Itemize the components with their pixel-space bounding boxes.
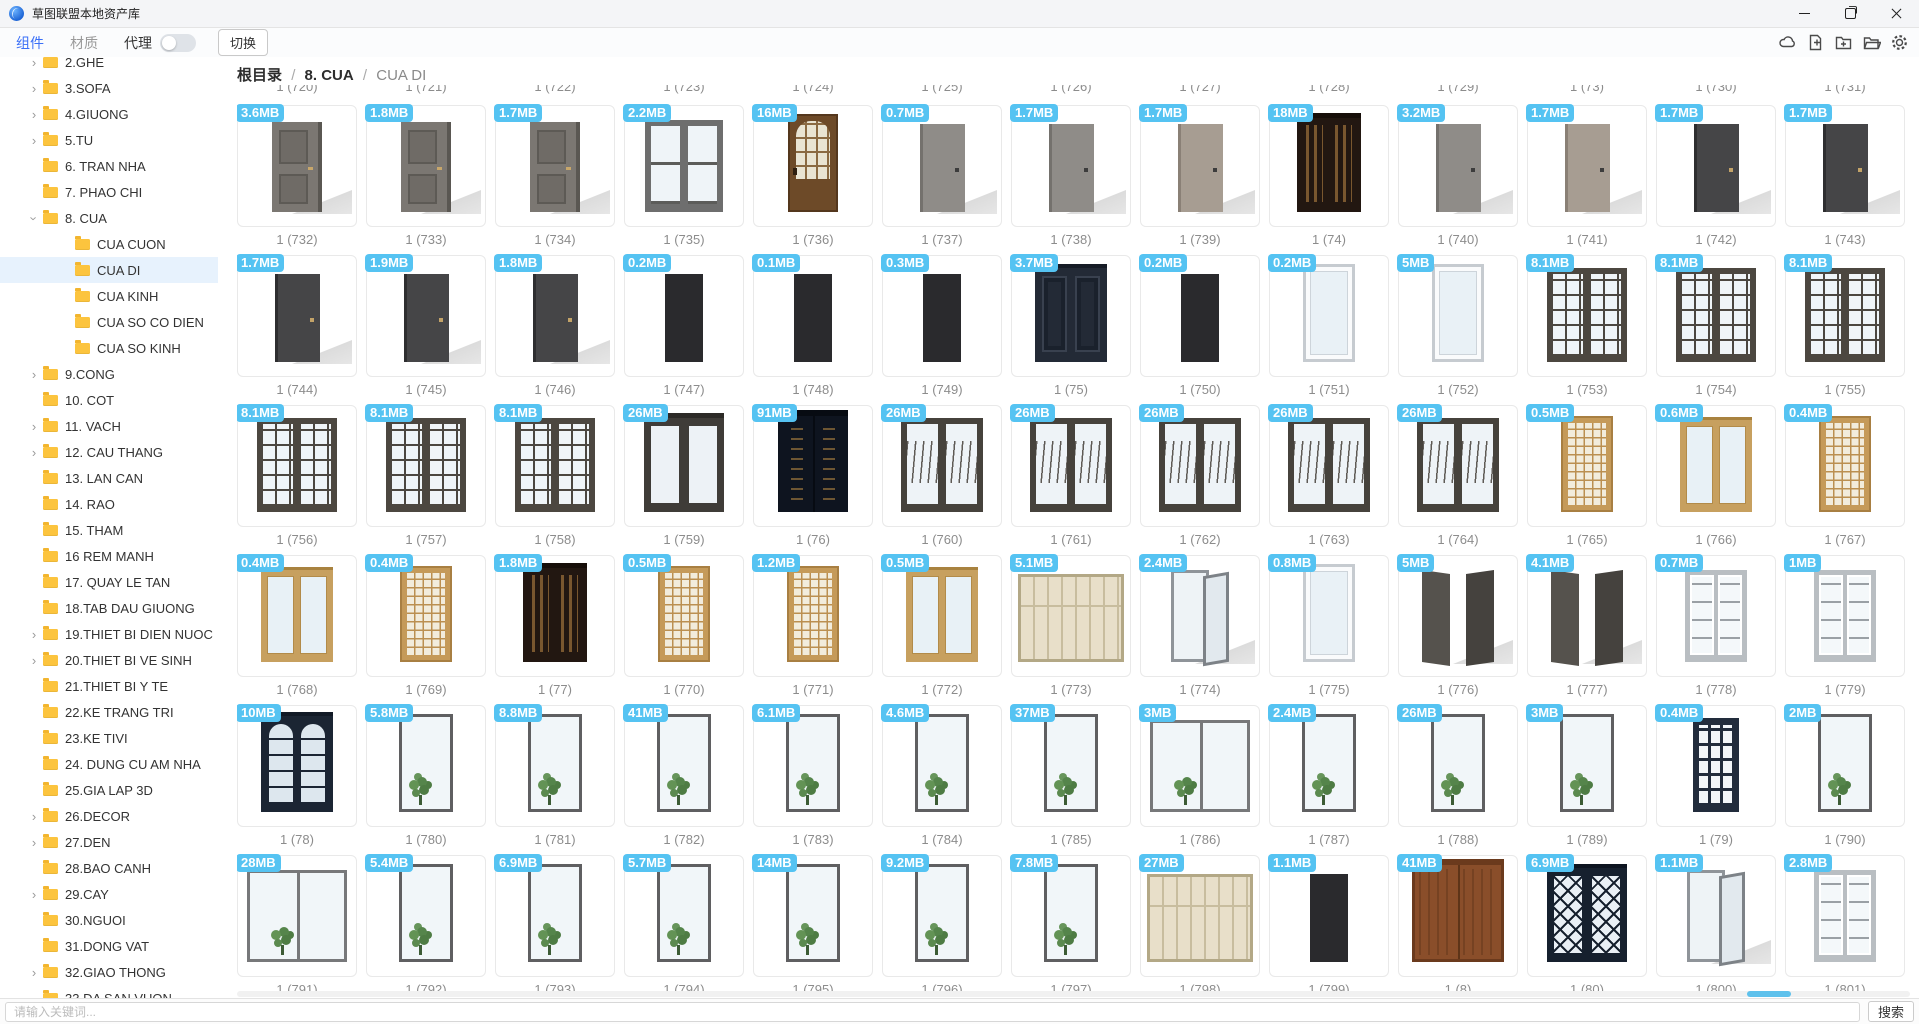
asset-thumbnail <box>882 705 1002 827</box>
file-size-badge: 5.4MB <box>365 854 413 872</box>
asset-card[interactable]: 3MB1 (789) <box>1527 705 1647 847</box>
asset-card[interactable]: 0.2MB1 (750) <box>1140 255 1260 397</box>
door-preview <box>787 566 839 662</box>
horizontal-scrollbar[interactable] <box>237 991 1910 997</box>
sidebar-item[interactable]: ›8. CUA <box>0 205 218 231</box>
asset-card[interactable]: 0.4MB1 (769) <box>366 555 486 697</box>
sidebar-item[interactable]: 21.THIET BI Y TE <box>0 673 218 699</box>
asset-thumbnail <box>1527 555 1647 677</box>
tab-materials[interactable]: 材质 <box>70 33 98 53</box>
asset-thumbnail <box>1269 555 1389 677</box>
sidebar-item[interactable]: 14. RAO <box>0 491 218 517</box>
cloud-icon[interactable] <box>1778 33 1797 52</box>
sidebar-item[interactable]: 15. THAM <box>0 517 218 543</box>
file-size-badge: 0.3MB <box>881 254 929 272</box>
sidebar-item[interactable]: ›12. CAU THANG <box>0 439 218 465</box>
horizontal-scrollbar-thumb[interactable] <box>1747 991 1791 997</box>
folder-icon <box>43 811 58 822</box>
door-preview <box>261 712 333 812</box>
search-input[interactable] <box>5 1002 1860 1022</box>
file-size-badge: 0.5MB <box>623 554 671 572</box>
asset-card[interactable]: 26MB1 (763) <box>1269 405 1389 547</box>
asset-thumbnail <box>1269 255 1389 377</box>
chevron-right-icon[interactable]: › <box>26 446 42 459</box>
file-size-badge: 1.8MB <box>494 554 542 572</box>
sidebar-item-label: CUA SO KINH <box>97 341 181 356</box>
folder-icon <box>43 447 58 458</box>
asset-name: 1 (745) <box>366 382 486 397</box>
sidebar-item-label: 15. THAM <box>65 523 123 538</box>
asset-card[interactable]: 0.2MB1 (747) <box>624 255 744 397</box>
asset-card[interactable]: 3.7MB1 (75) <box>1011 255 1131 397</box>
asset-card[interactable]: 2.2MB1 (735) <box>624 105 744 247</box>
file-size-badge: 5MB <box>1397 554 1434 572</box>
sidebar-item[interactable]: ›9.CONG <box>0 361 218 387</box>
asset-thumbnail <box>1785 105 1905 227</box>
asset-thumbnail <box>1269 705 1389 827</box>
sidebar-item[interactable]: 28.BAO CANH <box>0 855 218 881</box>
asset-name: 1 (777) <box>1527 682 1647 697</box>
door-preview <box>247 870 347 962</box>
asset-card[interactable]: 18MB1 (74) <box>1269 105 1389 247</box>
asset-card[interactable]: 26MB1 (762) <box>1140 405 1260 547</box>
sidebar-item[interactable]: 13. LAN CAN <box>0 465 218 491</box>
folder-icon <box>43 551 58 562</box>
asset-card[interactable]: 37MB1 (785) <box>1011 705 1131 847</box>
door-preview <box>1687 870 1745 962</box>
breadcrumb-separator: / <box>291 67 295 84</box>
door-preview <box>786 714 840 812</box>
sidebar-item[interactable]: 31.DONG VAT <box>0 933 218 959</box>
chevron-right-icon[interactable]: › <box>26 368 42 381</box>
sidebar-item[interactable]: ›20.THIET BI VE SINH <box>0 647 218 673</box>
sidebar-item[interactable]: ›29.CAY <box>0 881 218 907</box>
switch-button[interactable]: 切换 <box>218 29 268 56</box>
sidebar-item[interactable]: ›32.GIAO THONG <box>0 959 218 985</box>
asset-card[interactable]: 26MB1 (788) <box>1398 705 1518 847</box>
close-button[interactable] <box>1873 0 1919 27</box>
chevron-right-icon[interactable]: › <box>26 420 42 433</box>
door-preview <box>915 864 969 962</box>
asset-thumbnail <box>753 105 873 227</box>
sidebar-item[interactable]: 25.GIA LAP 3D <box>0 777 218 803</box>
door-preview <box>401 122 451 212</box>
door-preview <box>1547 268 1627 362</box>
sidebar-item[interactable]: 17. QUAY LE TAN <box>0 569 218 595</box>
asset-name: 1 (749) <box>882 382 1002 397</box>
door-preview <box>1561 416 1613 512</box>
door-preview <box>1818 714 1872 812</box>
asset-card[interactable]: 0.4MB1 (79) <box>1656 705 1776 847</box>
asset-card[interactable]: 1.7MB1 (741) <box>1527 105 1647 247</box>
sidebar-item[interactable]: ›11. VACH <box>0 413 218 439</box>
door-preview <box>528 864 582 962</box>
asset-name: 1 (760) <box>882 532 1002 547</box>
asset-card[interactable]: 3MB1 (786) <box>1140 705 1260 847</box>
asset-name: 1 (754) <box>1656 382 1776 397</box>
asset-card[interactable]: 7.8MB1 (797) <box>1011 855 1131 996</box>
chevron-right-icon[interactable]: › <box>26 82 42 95</box>
door-preview <box>915 714 969 812</box>
asset-thumbnail <box>237 855 357 977</box>
breadcrumb-root[interactable]: 根目录 <box>237 67 282 84</box>
asset-name: 1 (781) <box>495 832 615 847</box>
asset-card[interactable]: 41MB1 (782) <box>624 705 744 847</box>
settings-gear-icon[interactable] <box>1890 33 1909 52</box>
asset-card[interactable]: 3.2MB1 (740) <box>1398 105 1518 247</box>
door-preview <box>920 124 965 212</box>
asset-thumbnail <box>366 555 486 677</box>
asset-card[interactable]: 26MB1 (764) <box>1398 405 1518 547</box>
sidebar-item-label: 11. VACH <box>65 419 121 434</box>
asset-thumbnail <box>366 405 486 527</box>
door-preview <box>1018 574 1124 662</box>
asset-card[interactable]: 6.1MB1 (783) <box>753 705 873 847</box>
file-size-badge: 0.7MB <box>881 104 929 122</box>
door-preview <box>1178 124 1223 212</box>
sidebar-item-label: 33.DA SAN VUON <box>65 991 172 999</box>
asset-card[interactable]: 5.4MB1 (792) <box>366 855 486 996</box>
asset-card[interactable]: 1.7MB1 (742) <box>1656 105 1776 247</box>
asset-card[interactable]: 27MB1 (798) <box>1140 855 1260 996</box>
chevron-right-icon[interactable]: › <box>26 57 42 69</box>
asset-name: 1 (774) <box>1140 682 1260 697</box>
sidebar-item[interactable]: CUA SO KINH <box>0 335 218 361</box>
search-button[interactable]: 搜索 <box>1868 1001 1914 1022</box>
asset-name: 1 (790) <box>1785 832 1905 847</box>
asset-card[interactable]: 5.8MB1 (780) <box>366 705 486 847</box>
door-preview <box>1044 714 1098 812</box>
asset-name: 1 (778) <box>1656 682 1776 697</box>
sidebar-item[interactable]: CUA DI <box>0 257 218 283</box>
asset-card[interactable]: 1.7MB1 (734) <box>495 105 615 247</box>
file-size-badge: 5.1MB <box>1010 554 1058 572</box>
file-size-badge: 26MB <box>623 404 668 422</box>
asset-grid-viewport: 1 (720)1 (721)1 (722)1 (723)1 (724)1 (72… <box>237 85 1910 996</box>
minimize-button[interactable] <box>1781 0 1827 27</box>
asset-thumbnail <box>1785 555 1905 677</box>
asset-thumbnail <box>366 105 486 227</box>
asset-card[interactable]: 8.1MB1 (755) <box>1785 255 1905 397</box>
asset-card[interactable]: 1.8MB1 (746) <box>495 255 615 397</box>
sidebar-item[interactable]: ›5.TU <box>0 127 218 153</box>
asset-card[interactable]: 5.1MB1 (773) <box>1011 555 1131 697</box>
sidebar-item[interactable]: 33.DA SAN VUON <box>0 985 218 998</box>
chevron-right-icon[interactable]: › <box>26 966 42 979</box>
sidebar-item[interactable]: ›3.SOFA <box>0 75 218 101</box>
asset-name: 1 (783) <box>753 832 873 847</box>
asset-thumbnail <box>1656 405 1776 527</box>
door-preview <box>1303 564 1355 662</box>
door-preview <box>275 274 320 362</box>
asset-card[interactable]: 2MB1 (790) <box>1785 705 1905 847</box>
sidebar-item[interactable]: 18.TAB DAU GIUONG <box>0 595 218 621</box>
asset-card[interactable]: 26MB1 (761) <box>1011 405 1131 547</box>
sidebar-item-label: CUA KINH <box>97 289 158 304</box>
asset-card[interactable]: 5MB1 (752) <box>1398 255 1518 397</box>
asset-name: 1 (753) <box>1527 382 1647 397</box>
door-preview <box>1823 124 1868 212</box>
app-logo-icon <box>9 6 24 21</box>
file-size-badge: 41MB <box>623 704 668 722</box>
breadcrumb-parent[interactable]: 8. CUA <box>305 67 354 84</box>
asset-card[interactable]: 4.6MB1 (784) <box>882 705 1002 847</box>
new-file-icon[interactable] <box>1806 33 1825 52</box>
folder-icon <box>43 967 58 978</box>
asset-card[interactable]: 0.4MB1 (768) <box>237 555 357 697</box>
file-size-badge: 1.7MB <box>1526 104 1574 122</box>
sidebar-item[interactable]: 23.KE TIVI <box>0 725 218 751</box>
asset-card[interactable]: 1.8MB1 (733) <box>366 105 486 247</box>
asset-card[interactable]: 0.7MB1 (778) <box>1656 555 1776 697</box>
sidebar-item[interactable]: ›27.DEN <box>0 829 218 855</box>
asset-thumbnail <box>1656 855 1776 977</box>
asset-card[interactable]: 8.1MB1 (757) <box>366 405 486 547</box>
asset-thumbnail <box>624 855 744 977</box>
asset-card[interactable]: 9.2MB1 (796) <box>882 855 1002 996</box>
file-size-badge: 1.1MB <box>1268 854 1316 872</box>
asset-card[interactable]: 4.1MB1 (777) <box>1527 555 1647 697</box>
sidebar-item-label: CUA SO CO DIEN <box>97 315 204 330</box>
sidebar-item-label: 8. CUA <box>65 211 107 226</box>
door-preview <box>1565 124 1610 212</box>
asset-card[interactable]: 0.1MB1 (748) <box>753 255 873 397</box>
door-preview <box>1303 264 1355 362</box>
asset-name: 1 (766) <box>1656 532 1776 547</box>
asset-card[interactable]: 5MB1 (776) <box>1398 555 1518 697</box>
door-preview <box>1814 870 1876 962</box>
chevron-right-icon[interactable]: › <box>26 888 42 901</box>
asset-card[interactable]: 0.5MB1 (765) <box>1527 405 1647 547</box>
asset-thumbnail <box>366 705 486 827</box>
asset-card[interactable]: 1.9MB1 (745) <box>366 255 486 397</box>
asset-card[interactable]: 8.1MB1 (758) <box>495 405 615 547</box>
new-folder-icon[interactable] <box>1834 33 1853 52</box>
asset-card[interactable]: 1.7MB1 (744) <box>237 255 357 397</box>
sidebar-item[interactable]: 22.KE TRANG TRI <box>0 699 218 725</box>
asset-name: 1 (747) <box>624 382 744 397</box>
asset-name: 1 (74) <box>1269 232 1389 247</box>
asset-thumbnail <box>1785 855 1905 977</box>
sidebar: ›2.GHE›3.SOFA›4.GIUONG›5.TU6. TRAN NHA7.… <box>0 57 219 998</box>
asset-card[interactable]: 8.1MB1 (753) <box>1527 255 1647 397</box>
asset-card[interactable]: 0.5MB1 (770) <box>624 555 744 697</box>
asset-card[interactable]: 1.7MB1 (743) <box>1785 105 1905 247</box>
door-preview <box>1181 274 1219 362</box>
sidebar-item[interactable]: 6. TRAN NHA <box>0 153 218 179</box>
asset-card[interactable]: 2.8MB1 (801) <box>1785 855 1905 996</box>
sidebar-item[interactable]: CUA KINH <box>0 283 218 309</box>
asset-thumbnail <box>1269 405 1389 527</box>
asset-thumbnail <box>1398 405 1518 527</box>
sidebar-item[interactable]: 7. PHAO CHI <box>0 179 218 205</box>
asset-name: 1 (770) <box>624 682 744 697</box>
asset-card[interactable]: 28MB1 (791) <box>237 855 357 996</box>
asset-name: 1 (762) <box>1140 532 1260 547</box>
asset-thumbnail <box>1011 105 1131 227</box>
asset-name-partial: 1 (725) <box>882 85 1002 95</box>
asset-card[interactable]: 1.1MB1 (799) <box>1269 855 1389 996</box>
door-preview <box>257 418 337 512</box>
asset-thumbnail <box>1398 255 1518 377</box>
asset-card[interactable]: 2.4MB1 (787) <box>1269 705 1389 847</box>
asset-name: 1 (735) <box>624 232 744 247</box>
asset-name: 1 (738) <box>1011 232 1131 247</box>
chevron-right-icon[interactable]: › <box>26 654 42 667</box>
file-size-badge: 1.8MB <box>365 104 413 122</box>
door-preview <box>923 274 961 362</box>
folder-icon <box>43 941 58 952</box>
sidebar-item[interactable]: 24. DUNG CU AM NHA <box>0 751 218 777</box>
asset-card[interactable]: 0.4MB1 (767) <box>1785 405 1905 547</box>
sidebar-item-label: 2.GHE <box>65 57 104 70</box>
asset-card[interactable]: 91MB1 (76) <box>753 405 873 547</box>
asset-name: 1 (740) <box>1398 232 1518 247</box>
asset-thumbnail <box>1398 105 1518 227</box>
sidebar-item[interactable]: 10. COT <box>0 387 218 413</box>
asset-card[interactable]: 1.7MB1 (739) <box>1140 105 1260 247</box>
door-preview <box>1044 864 1098 962</box>
asset-name: 1 (732) <box>237 232 357 247</box>
asset-card[interactable]: 6.9MB1 (793) <box>495 855 615 996</box>
tab-components[interactable]: 组件 <box>16 33 44 53</box>
asset-card[interactable]: 8.1MB1 (756) <box>237 405 357 547</box>
asset-thumbnail <box>1140 255 1260 377</box>
asset-card[interactable]: 1.7MB1 (738) <box>1011 105 1131 247</box>
asset-card[interactable]: 0.3MB1 (749) <box>882 255 1002 397</box>
asset-card[interactable]: 0.6MB1 (766) <box>1656 405 1776 547</box>
asset-card[interactable]: 26MB1 (760) <box>882 405 1002 547</box>
file-size-badge: 1.7MB <box>1784 104 1832 122</box>
asset-thumbnail <box>495 105 615 227</box>
asset-thumbnail <box>1011 255 1131 377</box>
sidebar-item[interactable]: 30.NGUOI <box>0 907 218 933</box>
file-size-badge: 8.8MB <box>494 704 542 722</box>
asset-card[interactable]: 1.8MB1 (77) <box>495 555 615 697</box>
asset-card[interactable]: 8.8MB1 (781) <box>495 705 615 847</box>
folder-icon <box>43 629 58 640</box>
asset-name: 1 (771) <box>753 682 873 697</box>
folder-icon <box>75 265 90 276</box>
file-size-badge: 0.8MB <box>1268 554 1316 572</box>
asset-thumbnail <box>1011 705 1131 827</box>
file-size-badge: 26MB <box>1397 404 1442 422</box>
asset-card[interactable]: 41MB1 (8) <box>1398 855 1518 996</box>
asset-name: 1 (736) <box>753 232 873 247</box>
sidebar-item-label: 10. COT <box>65 393 114 408</box>
folder-icon <box>75 291 90 302</box>
asset-card[interactable]: 0.5MB1 (772) <box>882 555 1002 697</box>
asset-card[interactable]: 5.7MB1 (794) <box>624 855 744 996</box>
asset-card[interactable]: 26MB1 (759) <box>624 405 744 547</box>
open-folder-icon[interactable] <box>1862 33 1881 52</box>
door-preview <box>1417 418 1499 512</box>
file-size-badge: 0.2MB <box>1268 254 1316 272</box>
restore-icon <box>1845 8 1856 19</box>
asset-card[interactable]: 1.2MB1 (771) <box>753 555 873 697</box>
asset-name: 1 (748) <box>753 382 873 397</box>
asset-name: 1 (75) <box>1011 382 1131 397</box>
asset-thumbnail <box>1527 405 1647 527</box>
sidebar-item[interactable]: ›26.DECOR <box>0 803 218 829</box>
chevron-right-icon[interactable]: › <box>26 810 42 823</box>
door-preview <box>1560 714 1614 812</box>
asset-thumbnail <box>1656 705 1776 827</box>
asset-card[interactable]: 6.9MB1 (80) <box>1527 855 1647 996</box>
title-bar: 草图联盟本地资产库 <box>0 0 1919 28</box>
folder-icon <box>75 317 90 328</box>
asset-thumbnail <box>1269 105 1389 227</box>
chevron-right-icon[interactable]: › <box>26 628 42 641</box>
asset-card[interactable]: 0.2MB1 (751) <box>1269 255 1389 397</box>
door-preview <box>1302 714 1356 812</box>
door-preview <box>523 563 587 662</box>
asset-name: 1 (768) <box>237 682 357 697</box>
asset-card[interactable]: 0.8MB1 (775) <box>1269 555 1389 697</box>
proxy-toggle[interactable] <box>160 34 196 52</box>
asset-thumbnail <box>1785 255 1905 377</box>
asset-card[interactable]: 1.1MB1 (800) <box>1656 855 1776 996</box>
asset-card[interactable]: 3.6MB1 (732) <box>237 105 357 247</box>
asset-name: 1 (78) <box>237 832 357 847</box>
asset-card[interactable]: 10MB1 (78) <box>237 705 357 847</box>
sidebar-item-label: CUA CUON <box>97 237 166 252</box>
asset-name: 1 (737) <box>882 232 1002 247</box>
door-preview <box>1805 268 1885 362</box>
asset-card[interactable]: 8.1MB1 (754) <box>1656 255 1776 397</box>
asset-card[interactable]: 16MB1 (736) <box>753 105 873 247</box>
asset-name: 1 (782) <box>624 832 744 847</box>
asset-name-partial: 1 (721) <box>366 85 486 95</box>
asset-card[interactable]: 0.7MB1 (737) <box>882 105 1002 247</box>
chevron-right-icon[interactable]: › <box>26 836 42 849</box>
chevron-right-icon[interactable]: › <box>26 134 42 147</box>
asset-name: 1 (739) <box>1140 232 1260 247</box>
maximize-button[interactable] <box>1827 0 1873 27</box>
asset-name: 1 (775) <box>1269 682 1389 697</box>
sidebar-item[interactable]: ›2.GHE <box>0 57 218 75</box>
sidebar-item[interactable]: CUA CUON <box>0 231 218 257</box>
door-preview <box>1549 570 1625 662</box>
file-size-badge: 0.4MB <box>237 554 284 572</box>
file-size-badge: 26MB <box>881 404 926 422</box>
file-size-badge: 3.2MB <box>1397 104 1445 122</box>
file-size-badge: 8.1MB <box>1784 254 1832 272</box>
asset-name-partial: 1 (728) <box>1269 85 1389 95</box>
asset-card[interactable]: 2.4MB1 (774) <box>1140 555 1260 697</box>
asset-card[interactable]: 14MB1 (795) <box>753 855 873 996</box>
door-preview <box>657 864 711 962</box>
sidebar-item[interactable]: 16 REM MANH <box>0 543 218 569</box>
asset-thumbnail <box>1656 555 1776 677</box>
door-preview <box>1310 874 1348 962</box>
door-preview <box>1412 859 1504 962</box>
chevron-right-icon[interactable]: › <box>26 108 42 121</box>
chevron-down-icon[interactable]: › <box>28 210 41 226</box>
asset-name: 1 (761) <box>1011 532 1131 547</box>
asset-card[interactable]: 1MB1 (779) <box>1785 555 1905 697</box>
sidebar-item-label: 17. QUAY LE TAN <box>65 575 170 590</box>
file-size-badge: 8.1MB <box>1655 254 1703 272</box>
door-preview <box>901 418 983 512</box>
sidebar-item[interactable]: ›4.GIUONG <box>0 101 218 127</box>
asset-name-partial: 1 (724) <box>753 85 873 95</box>
sidebar-item[interactable]: CUA SO CO DIEN <box>0 309 218 335</box>
asset-name: 1 (780) <box>366 832 486 847</box>
file-size-badge: 3MB <box>1139 704 1176 722</box>
sidebar-item[interactable]: ›19.THIET BI DIEN NUOC <box>0 621 218 647</box>
door-preview <box>1693 718 1739 812</box>
